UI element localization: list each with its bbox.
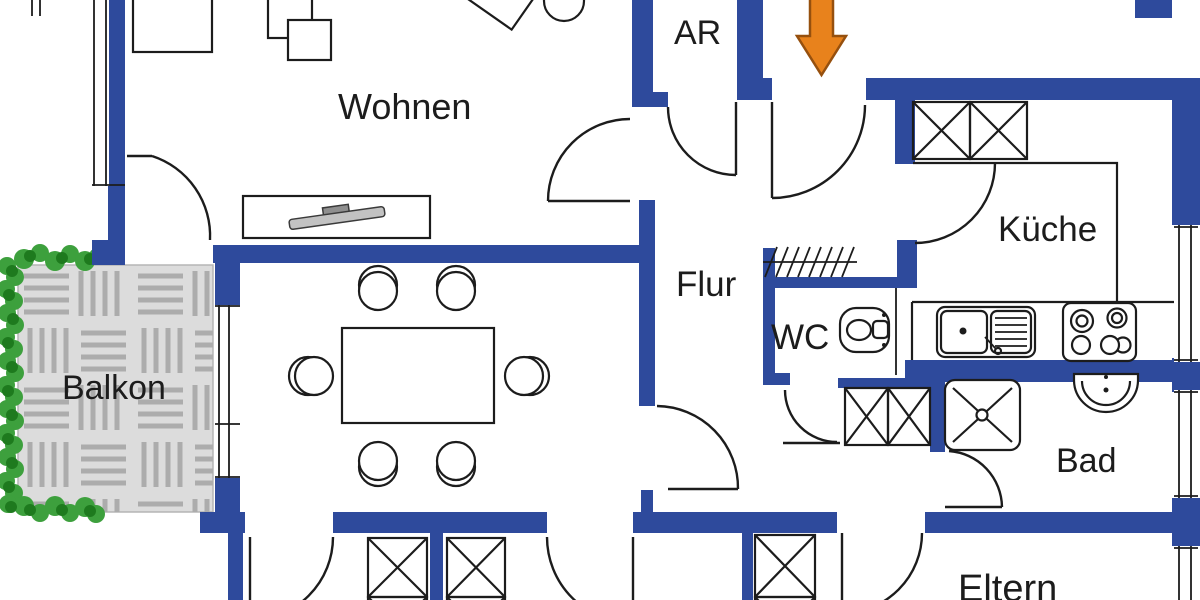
tv-sideboard [243, 196, 430, 238]
shower [945, 380, 1020, 450]
window-kitchen [1174, 225, 1200, 362]
room-label-bad: Bad [1056, 442, 1117, 480]
room-label-flur: Flur [676, 265, 737, 304]
room-label-wc: WC [771, 318, 829, 357]
side-table [288, 20, 331, 60]
stove [1063, 303, 1136, 361]
cabinet [133, 0, 212, 52]
kitchen-sink [937, 307, 1035, 357]
toilet [840, 308, 889, 352]
dining-table [342, 328, 494, 423]
room-label-balkon: Balkon [62, 369, 166, 407]
window-parents [1174, 546, 1200, 600]
room-label-wohnen: Wohnen [338, 86, 471, 127]
room-label-eltern: Eltern [958, 568, 1057, 600]
window-bath [1174, 390, 1200, 498]
room-label-kueche: Küche [998, 210, 1097, 249]
window-balcony [215, 305, 240, 478]
floor-plan: Wohnen AR Flur Küche WC Balkon Bad Elter… [0, 0, 1200, 600]
room-label-ar: AR [674, 14, 721, 52]
